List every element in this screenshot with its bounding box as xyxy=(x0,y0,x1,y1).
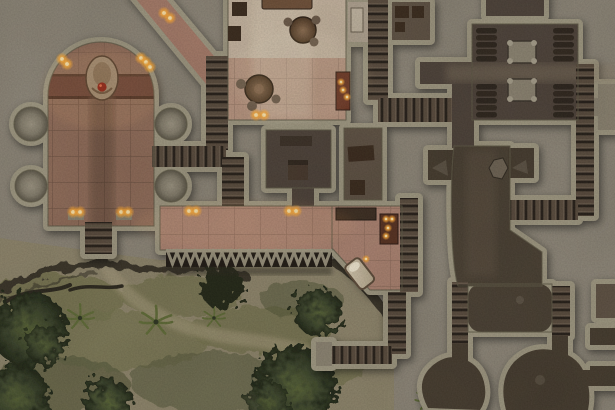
dungeon-map xyxy=(0,0,615,410)
dungeon-map-canvas[interactable] xyxy=(0,0,615,410)
grain-light xyxy=(0,0,615,410)
